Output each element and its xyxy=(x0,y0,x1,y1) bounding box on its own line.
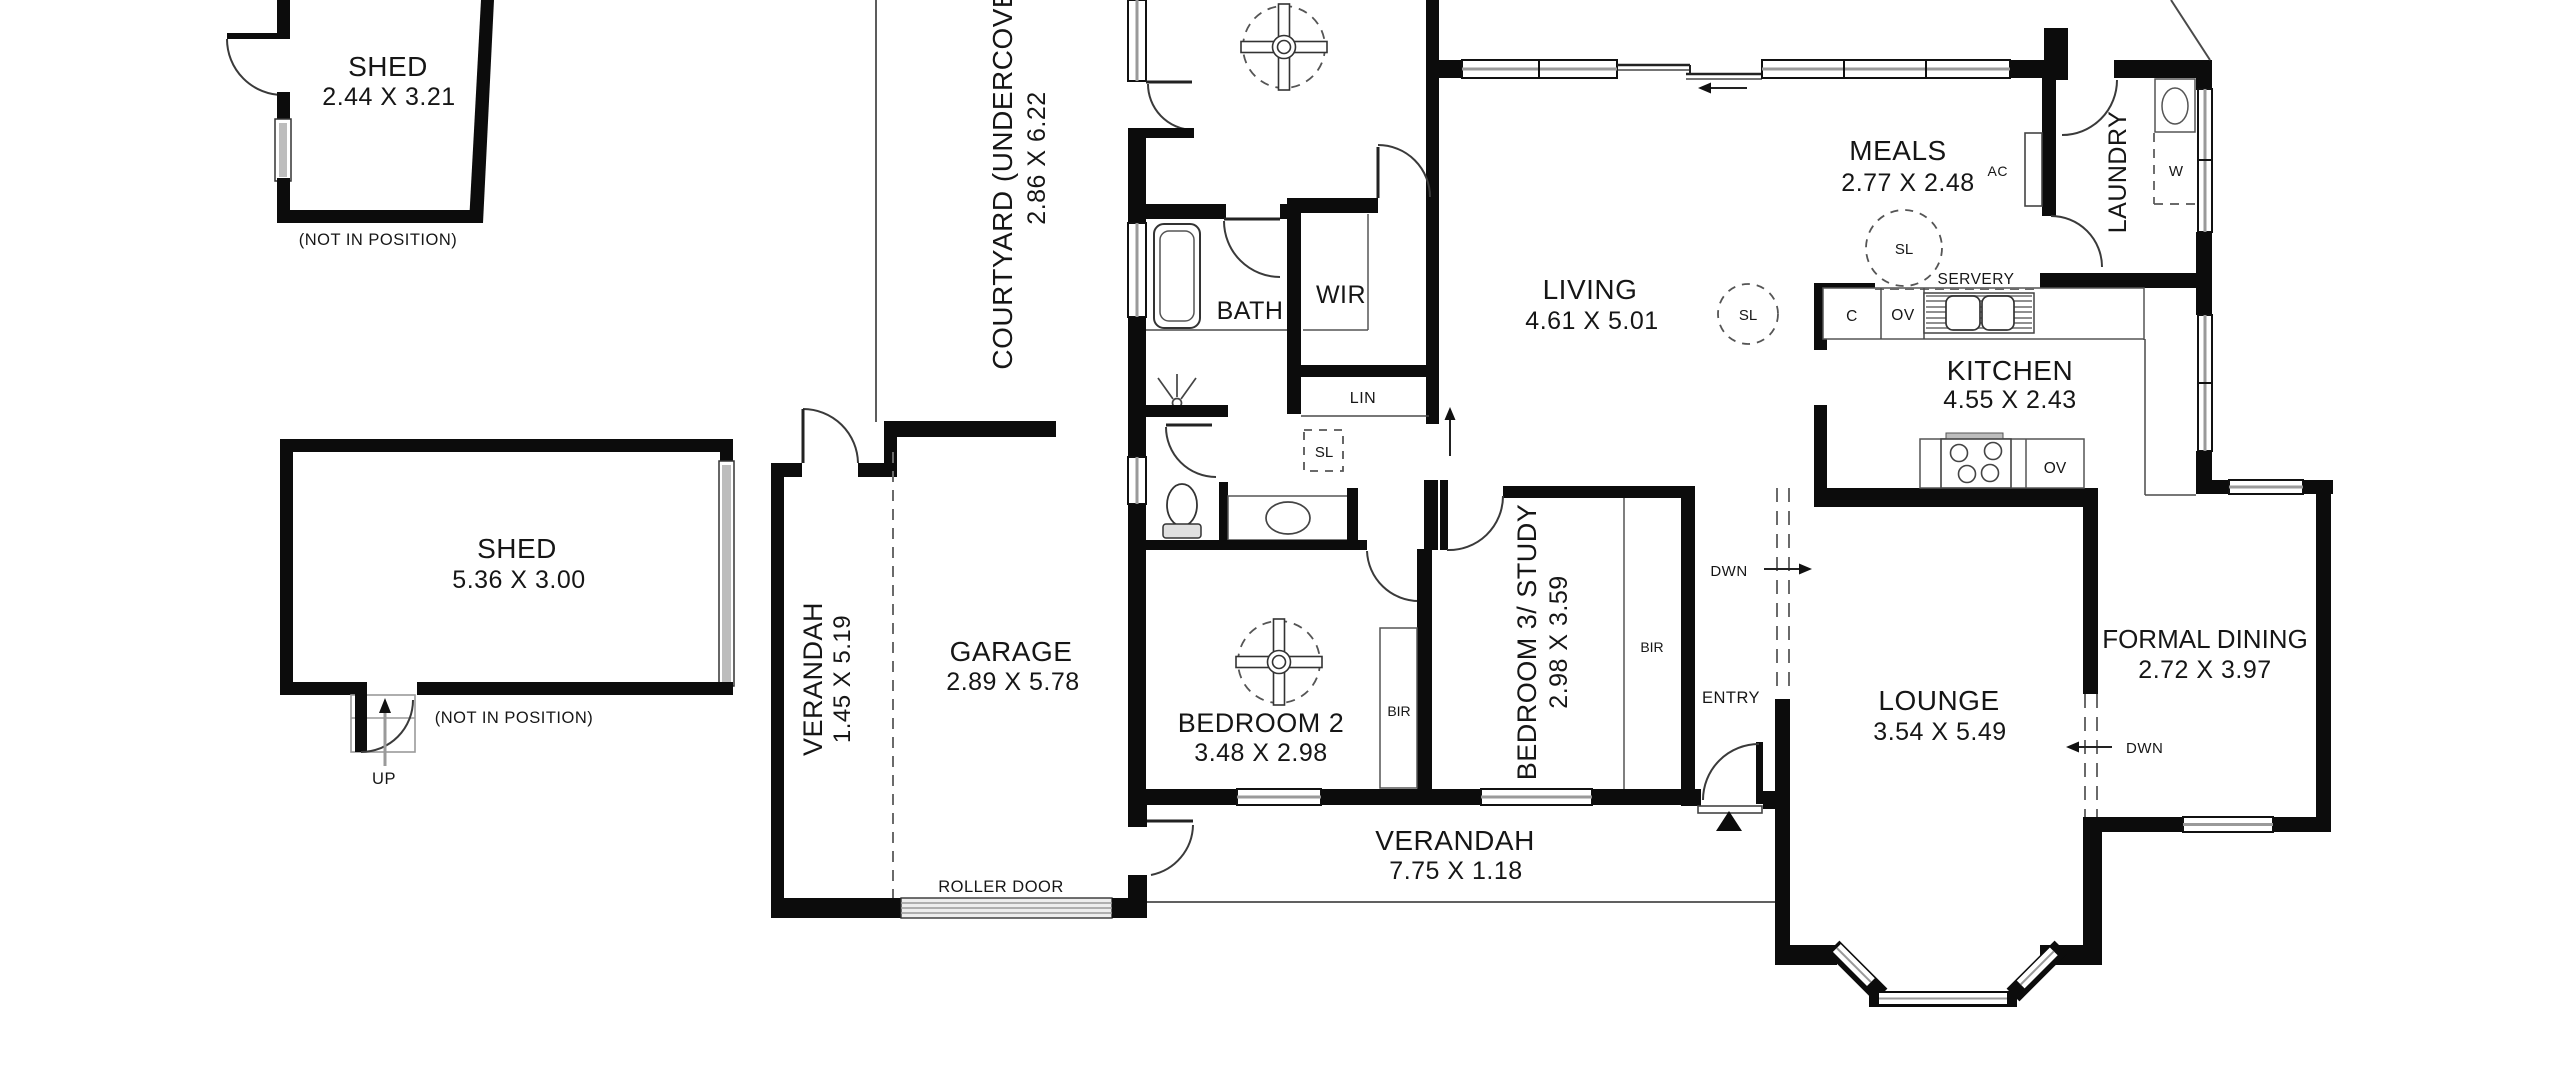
svg-text:SERVERY: SERVERY xyxy=(1937,271,2014,288)
svg-text:LOUNGE: LOUNGE xyxy=(1878,685,1999,716)
svg-text:BATH: BATH xyxy=(1217,297,1284,325)
svg-text:4.61 X 5.01: 4.61 X 5.01 xyxy=(1525,307,1658,335)
svg-text:OV: OV xyxy=(1891,307,1915,324)
svg-text:OV: OV xyxy=(2044,460,2067,477)
svg-text:DWN: DWN xyxy=(1710,563,1747,580)
svg-text:W: W xyxy=(2169,163,2184,180)
svg-text:UP: UP xyxy=(372,770,396,788)
svg-text:AC: AC xyxy=(1988,163,2008,179)
svg-text:(NOT IN POSITION): (NOT IN POSITION) xyxy=(435,709,594,727)
svg-text:ENTRY: ENTRY xyxy=(1702,689,1760,707)
svg-text:3.54 X 5.49: 3.54 X 5.49 xyxy=(1873,718,2006,746)
svg-text:2.86 X 6.22: 2.86 X 6.22 xyxy=(1023,91,1051,224)
svg-text:SL: SL xyxy=(1895,241,1913,258)
svg-text:2.89 X 5.78: 2.89 X 5.78 xyxy=(946,668,1079,696)
svg-text:2.77 X 2.48: 2.77 X 2.48 xyxy=(1841,169,1974,197)
svg-text:BIR: BIR xyxy=(1387,703,1410,719)
svg-text:3.48 X 2.98: 3.48 X 2.98 xyxy=(1194,739,1327,767)
svg-text:2.98 X 3.59: 2.98 X 3.59 xyxy=(1545,575,1573,708)
svg-text:1.45 X 5.19: 1.45 X 5.19 xyxy=(829,615,856,743)
svg-text:LIVING: LIVING xyxy=(1543,274,1638,305)
svg-text:ROLLER DOOR: ROLLER DOOR xyxy=(938,878,1064,896)
svg-text:WIR: WIR xyxy=(1316,281,1366,309)
svg-text:SL: SL xyxy=(1315,444,1333,461)
svg-text:COURTYARD (UNDERCOVER): COURTYARD (UNDERCOVER) xyxy=(987,0,1018,370)
svg-text:BIR: BIR xyxy=(1640,639,1663,655)
svg-text:C: C xyxy=(1846,308,1858,325)
svg-text:BEDROOM 2: BEDROOM 2 xyxy=(1178,708,1345,738)
svg-text:VERANDAH: VERANDAH xyxy=(1375,825,1535,856)
svg-text:SHED: SHED xyxy=(348,51,428,82)
svg-text:SHED: SHED xyxy=(477,533,557,564)
svg-text:5.36 X 3.00: 5.36 X 3.00 xyxy=(452,566,585,594)
svg-text:LIN: LIN xyxy=(1350,390,1376,407)
svg-text:KITCHEN: KITCHEN xyxy=(1947,355,2073,386)
svg-text:BEDROOM 3/ STUDY: BEDROOM 3/ STUDY xyxy=(1512,504,1542,781)
svg-text:SL: SL xyxy=(1739,307,1757,324)
svg-text:GARAGE: GARAGE xyxy=(950,636,1073,667)
svg-text:DWN: DWN xyxy=(2126,740,2163,757)
svg-text:7.75 X 1.18: 7.75 X 1.18 xyxy=(1389,857,1522,885)
svg-text:(NOT IN POSITION): (NOT IN POSITION) xyxy=(299,231,458,249)
svg-text:FORMAL DINING: FORMAL DINING xyxy=(2102,624,2308,654)
svg-text:4.55 X 2.43: 4.55 X 2.43 xyxy=(1943,386,2076,414)
svg-text:MEALS: MEALS xyxy=(1849,135,1946,166)
svg-text:2.72 X 3.97: 2.72 X 3.97 xyxy=(2138,656,2271,684)
svg-text:2.44 X 3.21: 2.44 X 3.21 xyxy=(322,83,455,111)
svg-text:VERANDAH: VERANDAH xyxy=(798,602,828,756)
svg-text:LAUNDRY: LAUNDRY xyxy=(2104,111,2132,234)
